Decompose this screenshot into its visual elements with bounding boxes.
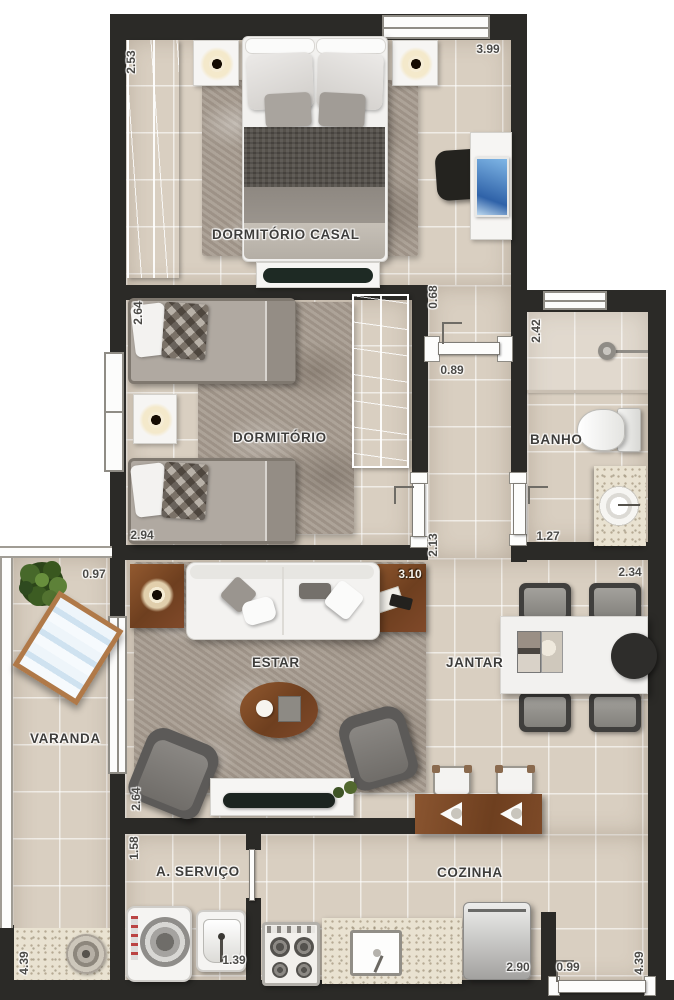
wardrobe-divider-line <box>153 40 155 278</box>
armchair-seat <box>347 716 411 785</box>
dim-hall-door: 0.89 <box>432 363 472 377</box>
table-lamp <box>139 577 175 613</box>
sofa-seat-split <box>282 567 284 635</box>
bench-cushion <box>263 268 373 283</box>
dim-hall-top: 0.68 <box>426 277 440 317</box>
floor-hallway <box>428 285 511 560</box>
dining-chair <box>589 692 641 732</box>
dim-bathroom-side: 2.42 <box>529 311 543 351</box>
service-glass-door <box>249 849 255 901</box>
chair-seat <box>524 697 566 727</box>
single-bed-top <box>128 298 296 384</box>
bed-foot-section <box>265 301 295 381</box>
stove <box>262 922 320 986</box>
tank-faucet-head <box>218 933 225 940</box>
wall-service-divider <box>246 898 261 982</box>
computer-monitor <box>475 157 509 217</box>
coffee-table <box>240 682 318 738</box>
bed-foot-section <box>265 461 295 541</box>
wall-balcony-living-lower <box>110 772 125 980</box>
sofa <box>186 562 380 640</box>
kitchen-sink <box>350 930 402 976</box>
place-setting-plate <box>511 808 522 819</box>
bed-cushion <box>318 92 366 128</box>
wardrobe-second-bedroom <box>352 294 409 468</box>
washer-controls <box>131 916 138 960</box>
dim-kitchen-bottom: 2.90 <box>498 960 538 974</box>
room-label-living: ESTAR <box>252 655 300 670</box>
shower-divider-line <box>527 390 648 393</box>
bathroom-door-swing <box>528 486 548 504</box>
wall-right-of-hall-upper <box>511 14 527 480</box>
dim-balcony-top: 0.97 <box>74 567 114 581</box>
wall-dorm-living-divider <box>110 545 428 560</box>
toilet <box>577 406 641 452</box>
window-mullion <box>545 300 605 302</box>
bar-counter <box>415 794 542 834</box>
bedroom-door-swing <box>394 486 414 504</box>
dim-bathroom-bottom: 1.27 <box>528 529 568 543</box>
room-label-bathroom: BANHO <box>530 432 583 447</box>
room-label-master-bedroom: DORMITÓRIO CASAL <box>212 227 360 242</box>
wardrobe-divider-line <box>380 296 382 466</box>
dim-dining-top: 2.34 <box>610 565 650 579</box>
chair-seat <box>594 697 636 727</box>
dim-bedroom-top: 2.64 <box>131 293 145 333</box>
table-lamp <box>398 46 434 82</box>
plaid-cushion <box>161 462 209 521</box>
nightstand-left <box>193 40 239 86</box>
balcony-railing-left <box>0 546 13 928</box>
table-photo-tray <box>541 631 563 673</box>
dim-service-tank: 1.39 <box>214 953 254 967</box>
sink-drain <box>373 949 381 957</box>
stool-arm <box>432 765 440 773</box>
desk <box>470 132 512 240</box>
burner <box>272 962 288 978</box>
door-jamb <box>509 534 527 546</box>
dim-living-sidetable: 3.10 <box>390 567 430 581</box>
side-table-left <box>130 564 184 628</box>
washer-drum <box>140 917 190 967</box>
door-track-line <box>117 618 119 772</box>
chair-seat <box>594 588 636 618</box>
bed-blanket-fold <box>244 187 385 225</box>
burner <box>270 937 290 957</box>
window-second-bedroom <box>104 352 124 472</box>
coffee-cup <box>256 700 273 717</box>
table-lamp <box>199 46 235 82</box>
table-photo-tray <box>517 631 541 673</box>
sink-faucet <box>373 955 383 973</box>
bar-stool <box>433 766 471 796</box>
window-bathroom <box>543 291 607 310</box>
bar-stool <box>496 766 534 796</box>
shower-head <box>598 342 616 360</box>
dim-bedroom-bottom: 2.94 <box>122 528 162 542</box>
room-label-balcony: VARANDA <box>30 731 101 746</box>
window-mullion <box>384 27 488 29</box>
tray <box>278 696 301 722</box>
burner <box>296 962 312 978</box>
stool-arm <box>495 765 503 773</box>
stool-arm <box>464 765 472 773</box>
plaid-cushion <box>161 302 209 361</box>
toilet-bowl <box>577 409 625 451</box>
stove-knobs <box>267 926 315 933</box>
dim-balcony-side: 4.39 <box>17 943 31 983</box>
dim-master-top: 3.99 <box>468 42 508 56</box>
table-lamp <box>138 402 174 438</box>
dim-master-left: 2.53 <box>124 42 138 82</box>
dining-chair <box>519 692 571 732</box>
floor-plan: DORMITÓRIO CASAL DORMITÓRIO BANHO ESTAR … <box>0 0 674 1000</box>
chair-seat <box>524 588 566 618</box>
window-master-top <box>382 15 490 39</box>
dim-service-side: 1.58 <box>127 828 141 868</box>
kitchen-counter <box>322 918 462 984</box>
bed-blanket <box>244 127 385 189</box>
room-label-service: A. SERVIÇO <box>156 864 240 879</box>
decor-plant-ball <box>333 787 344 798</box>
hall-door-swing <box>442 322 462 344</box>
shower-arm <box>612 350 648 353</box>
bathroom-vanity <box>594 466 646 546</box>
place-setting-plate <box>451 808 462 819</box>
dim-living-side: 2.64 <box>129 779 143 819</box>
dim-entry: 0.99 <box>548 960 588 974</box>
floor-drain <box>66 934 106 974</box>
bed-cushion <box>264 92 312 128</box>
washing-machine <box>126 906 192 982</box>
burner <box>294 937 314 957</box>
tv <box>223 793 335 808</box>
nightstand-right <box>392 40 438 86</box>
window-mullion <box>106 411 122 413</box>
room-label-dining: JANTAR <box>446 655 503 670</box>
dining-table <box>500 616 648 694</box>
dim-kitchen-side: 4.39 <box>632 943 646 983</box>
room-label-bedroom: DORMITÓRIO <box>233 430 327 445</box>
room-label-kitchen: COZINHA <box>437 865 503 880</box>
table-centerpiece-disc <box>611 633 657 679</box>
tv-rack <box>210 778 354 816</box>
wall-living-bottom <box>110 818 430 834</box>
bathroom-door-leaf <box>513 483 526 535</box>
wall-service-stub-top <box>246 834 261 850</box>
stool-arm <box>527 765 535 773</box>
decor-plant-ball <box>344 781 357 794</box>
nightstand-between-beds <box>133 394 177 444</box>
dim-hall-bottom: 2.13 <box>426 525 440 565</box>
wall-balcony-corner <box>0 925 14 982</box>
vanity-sink <box>599 486 639 526</box>
fridge-handle <box>468 909 526 912</box>
vanity-faucet <box>618 504 640 506</box>
bed-end-bench <box>256 262 380 288</box>
armchair-seat <box>135 737 211 813</box>
